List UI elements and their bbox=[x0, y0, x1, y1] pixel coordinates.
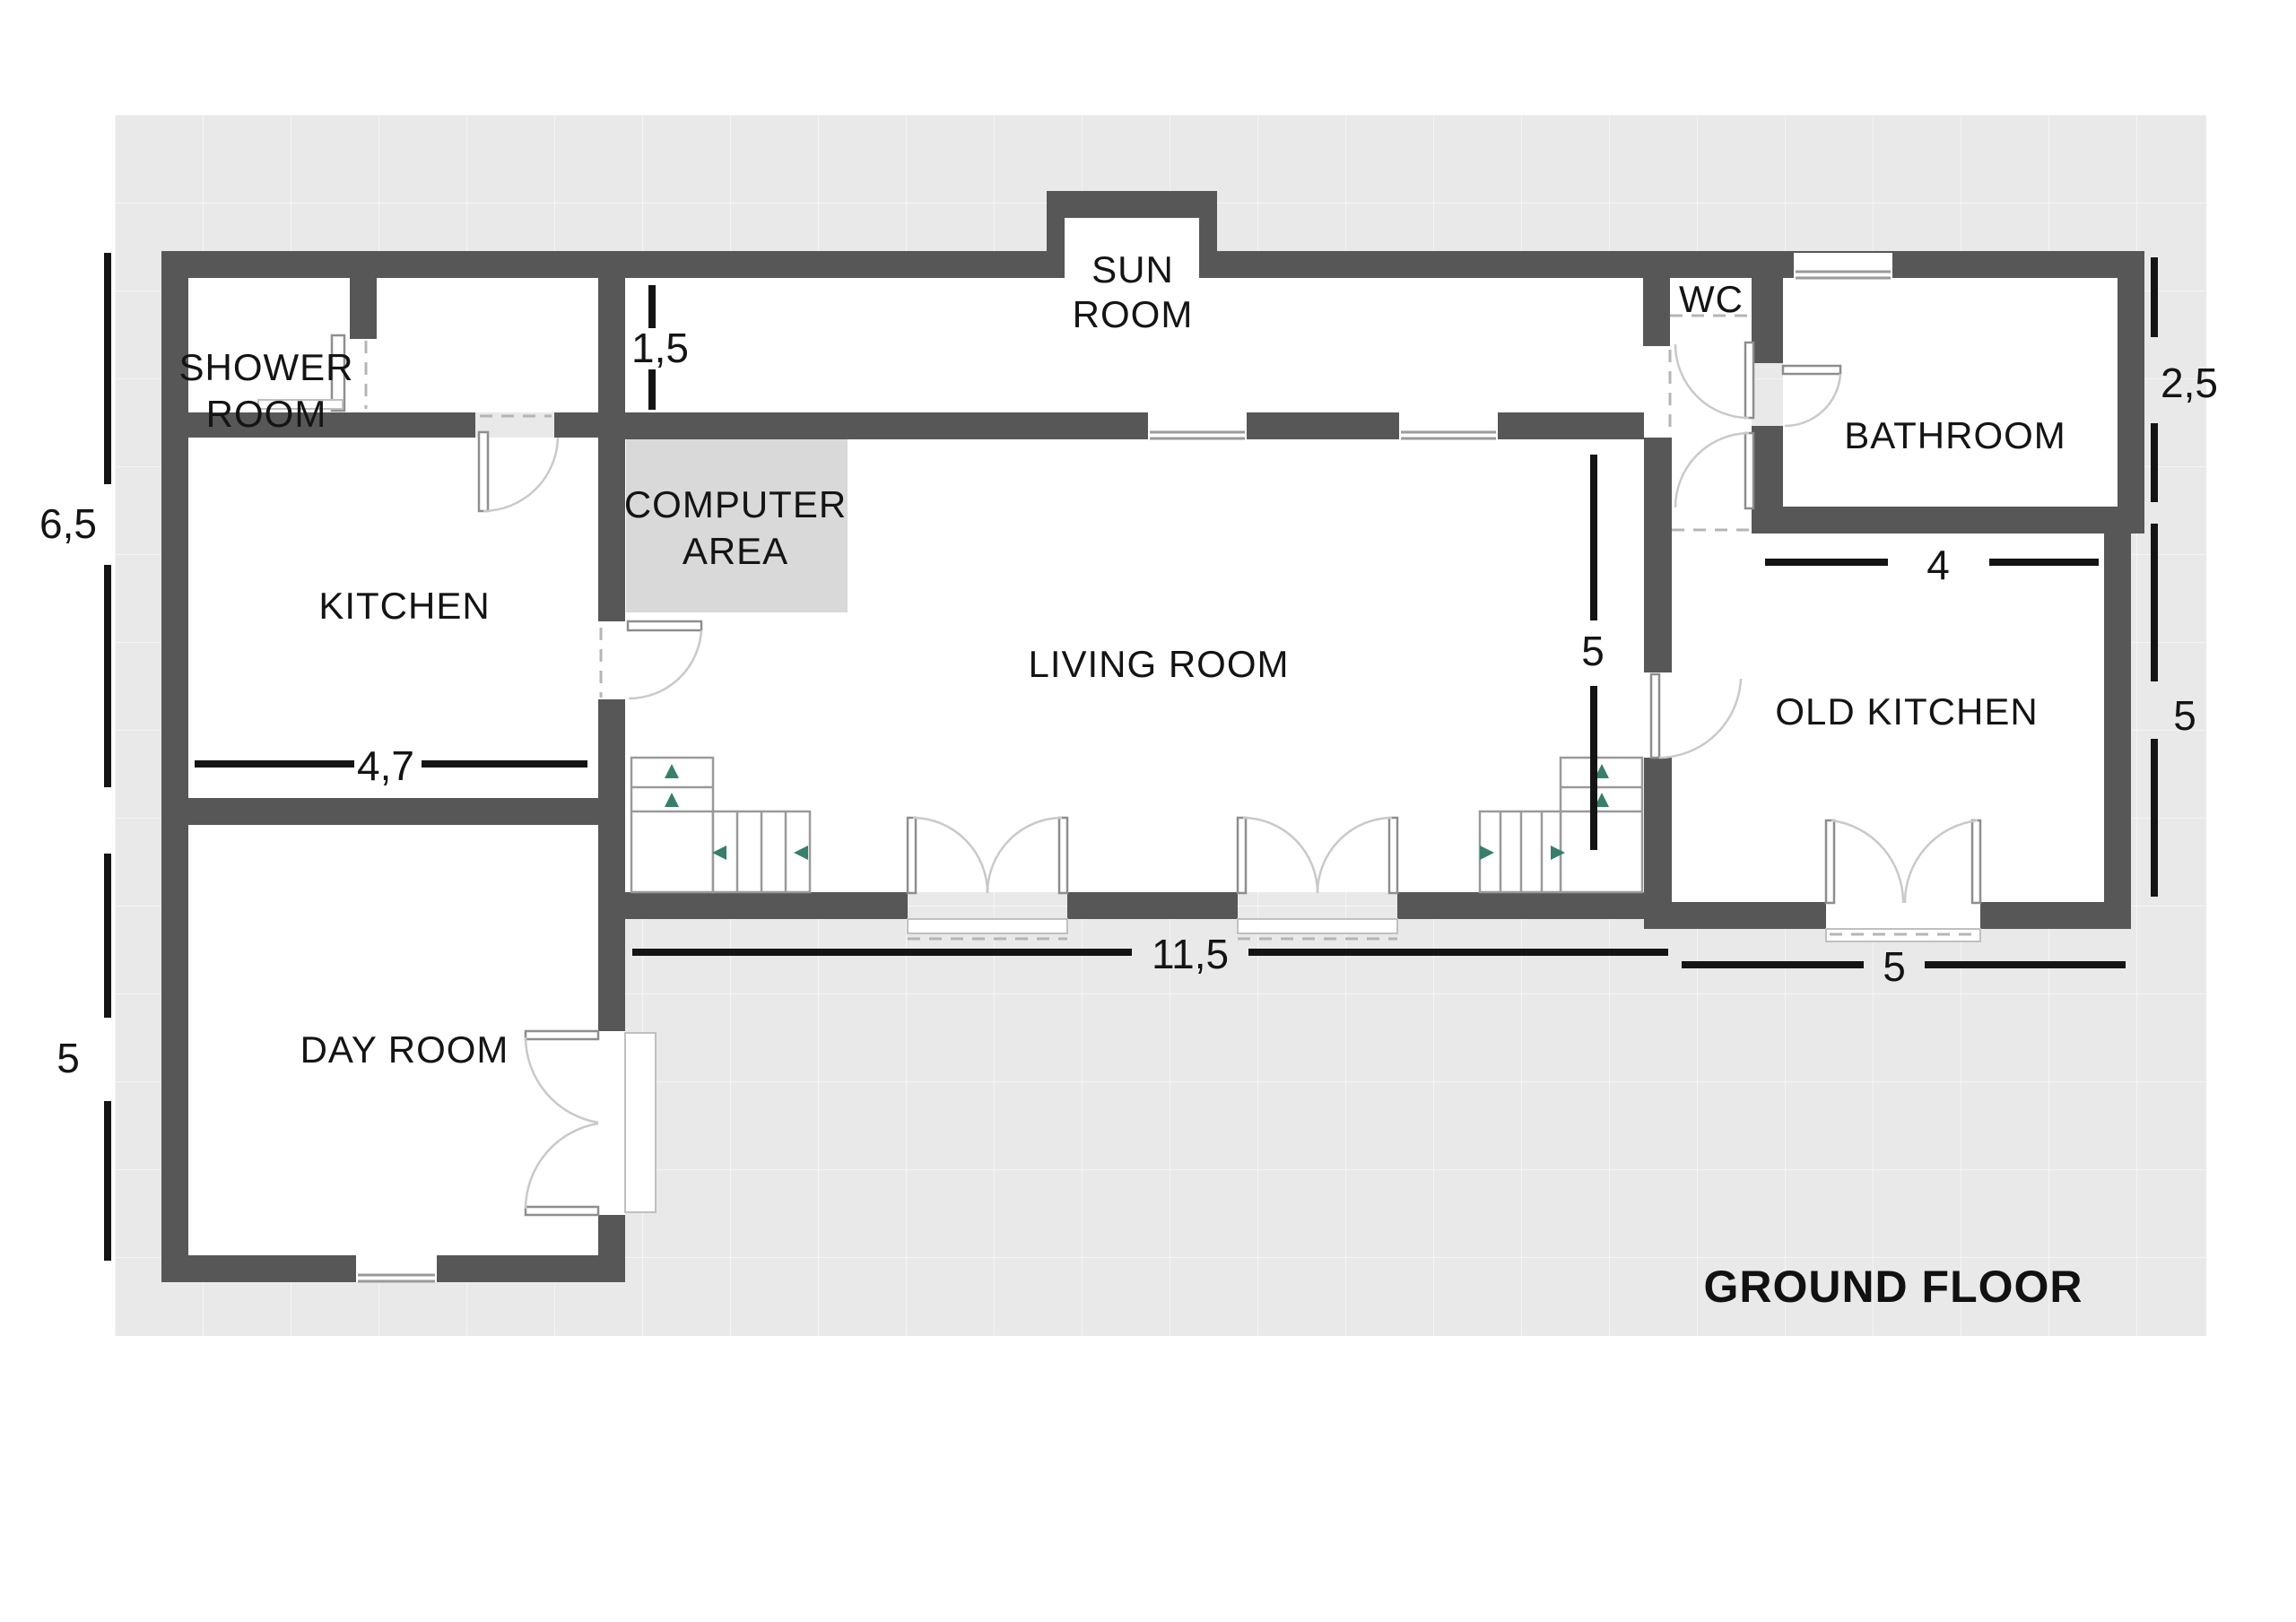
wall-right-outer-upper bbox=[2118, 251, 2144, 533]
wall-living-bottom-b bbox=[1067, 892, 1238, 919]
plan-title: GROUND FLOOR bbox=[1703, 1262, 2083, 1312]
wall-wc-right bbox=[1752, 278, 1783, 363]
dimension-label-living-5: 5 bbox=[1581, 628, 1605, 674]
dimension-label-living-11-5: 11,5 bbox=[1152, 931, 1229, 977]
window-livingtop-1 bbox=[1148, 412, 1247, 439]
wall-living-top-a bbox=[598, 412, 1148, 439]
wall-dayroom-right-upper bbox=[598, 919, 625, 1031]
wall-kitchen-bottom bbox=[161, 798, 625, 825]
wall-divider-upper bbox=[598, 278, 625, 621]
wall-oldkitchen-bottom-b bbox=[1980, 902, 2131, 929]
room-label-old-kitchen: OLD KITCHEN bbox=[1775, 690, 2038, 733]
floor-plan-page: 6,551,54,711,5542,555 SHOWERROOMKITCHEND… bbox=[0, 0, 2296, 1622]
computer-area-zone bbox=[626, 439, 848, 612]
wall-living-right-lower bbox=[1644, 758, 1672, 919]
window-bathroom bbox=[1794, 253, 1892, 278]
wall-dayroom-bottom-b bbox=[437, 1255, 625, 1282]
room-label-living-room: LIVING ROOM bbox=[1028, 643, 1289, 685]
wall-sunroom-top bbox=[1047, 191, 1217, 218]
wall-sunroom-right bbox=[1199, 191, 1217, 278]
wall-living-right-upper bbox=[1644, 438, 1672, 672]
room-label-day-room: DAY ROOM bbox=[300, 1028, 509, 1071]
wall-row-bottom-b bbox=[554, 412, 601, 438]
room-label-bathroom: BATHROOM bbox=[1844, 414, 2066, 456]
wall-shower-right bbox=[350, 278, 377, 339]
dimension-label-left-5: 5 bbox=[57, 1035, 80, 1081]
room-label-wc: WC bbox=[1679, 278, 1744, 320]
wall-corridor-end-stub bbox=[1643, 278, 1670, 346]
wall-living-top-c bbox=[1498, 412, 1644, 439]
dimension-label-bottom-5: 5 bbox=[1883, 943, 1906, 990]
window-livingtop-2 bbox=[1399, 412, 1498, 439]
wall-living-top-b bbox=[1247, 412, 1399, 439]
wall-bathroom-bottom bbox=[1752, 507, 2144, 533]
wall-top-right bbox=[1217, 251, 2144, 278]
wall-left-outer bbox=[161, 251, 188, 1282]
room-label-kitchen: KITCHEN bbox=[318, 585, 490, 627]
dimension-label-kitchen-4-7: 4,7 bbox=[357, 742, 414, 789]
window-dayroom bbox=[356, 1255, 437, 1282]
wall-living-bottom-c bbox=[1397, 892, 1672, 919]
room-label-computer-area: COMPUTER bbox=[624, 483, 847, 525]
room-label-computer-area: AREA bbox=[683, 530, 788, 572]
dimension-label-right-5: 5 bbox=[2173, 692, 2196, 739]
room-label-shower-room: ROOM bbox=[206, 393, 327, 435]
wall-top-left bbox=[161, 251, 1047, 278]
room-label-shower-room: SHOWER bbox=[179, 346, 354, 388]
wall-right-outer-lower bbox=[2104, 507, 2131, 929]
room-label-sun-room: SUN bbox=[1091, 248, 1174, 291]
wall-oldkitchen-bottom-a bbox=[1644, 902, 1826, 929]
room-label-sun-room: ROOM bbox=[1073, 293, 1194, 335]
dimension-label-left-6-5: 6,5 bbox=[39, 500, 97, 547]
dimension-label-corridor-1-5: 1,5 bbox=[631, 325, 689, 371]
floor-plan-canvas: 6,551,54,711,5542,555 SHOWERROOMKITCHEND… bbox=[0, 0, 2296, 1622]
dimension-label-oldkitchen-4: 4 bbox=[1926, 542, 1950, 588]
dimension-label-right-2-5: 2,5 bbox=[2161, 360, 2218, 406]
wall-living-bottom-a bbox=[598, 892, 908, 919]
wall-divider-mid bbox=[598, 699, 625, 893]
wall-dayroom-bottom-a bbox=[161, 1255, 356, 1282]
